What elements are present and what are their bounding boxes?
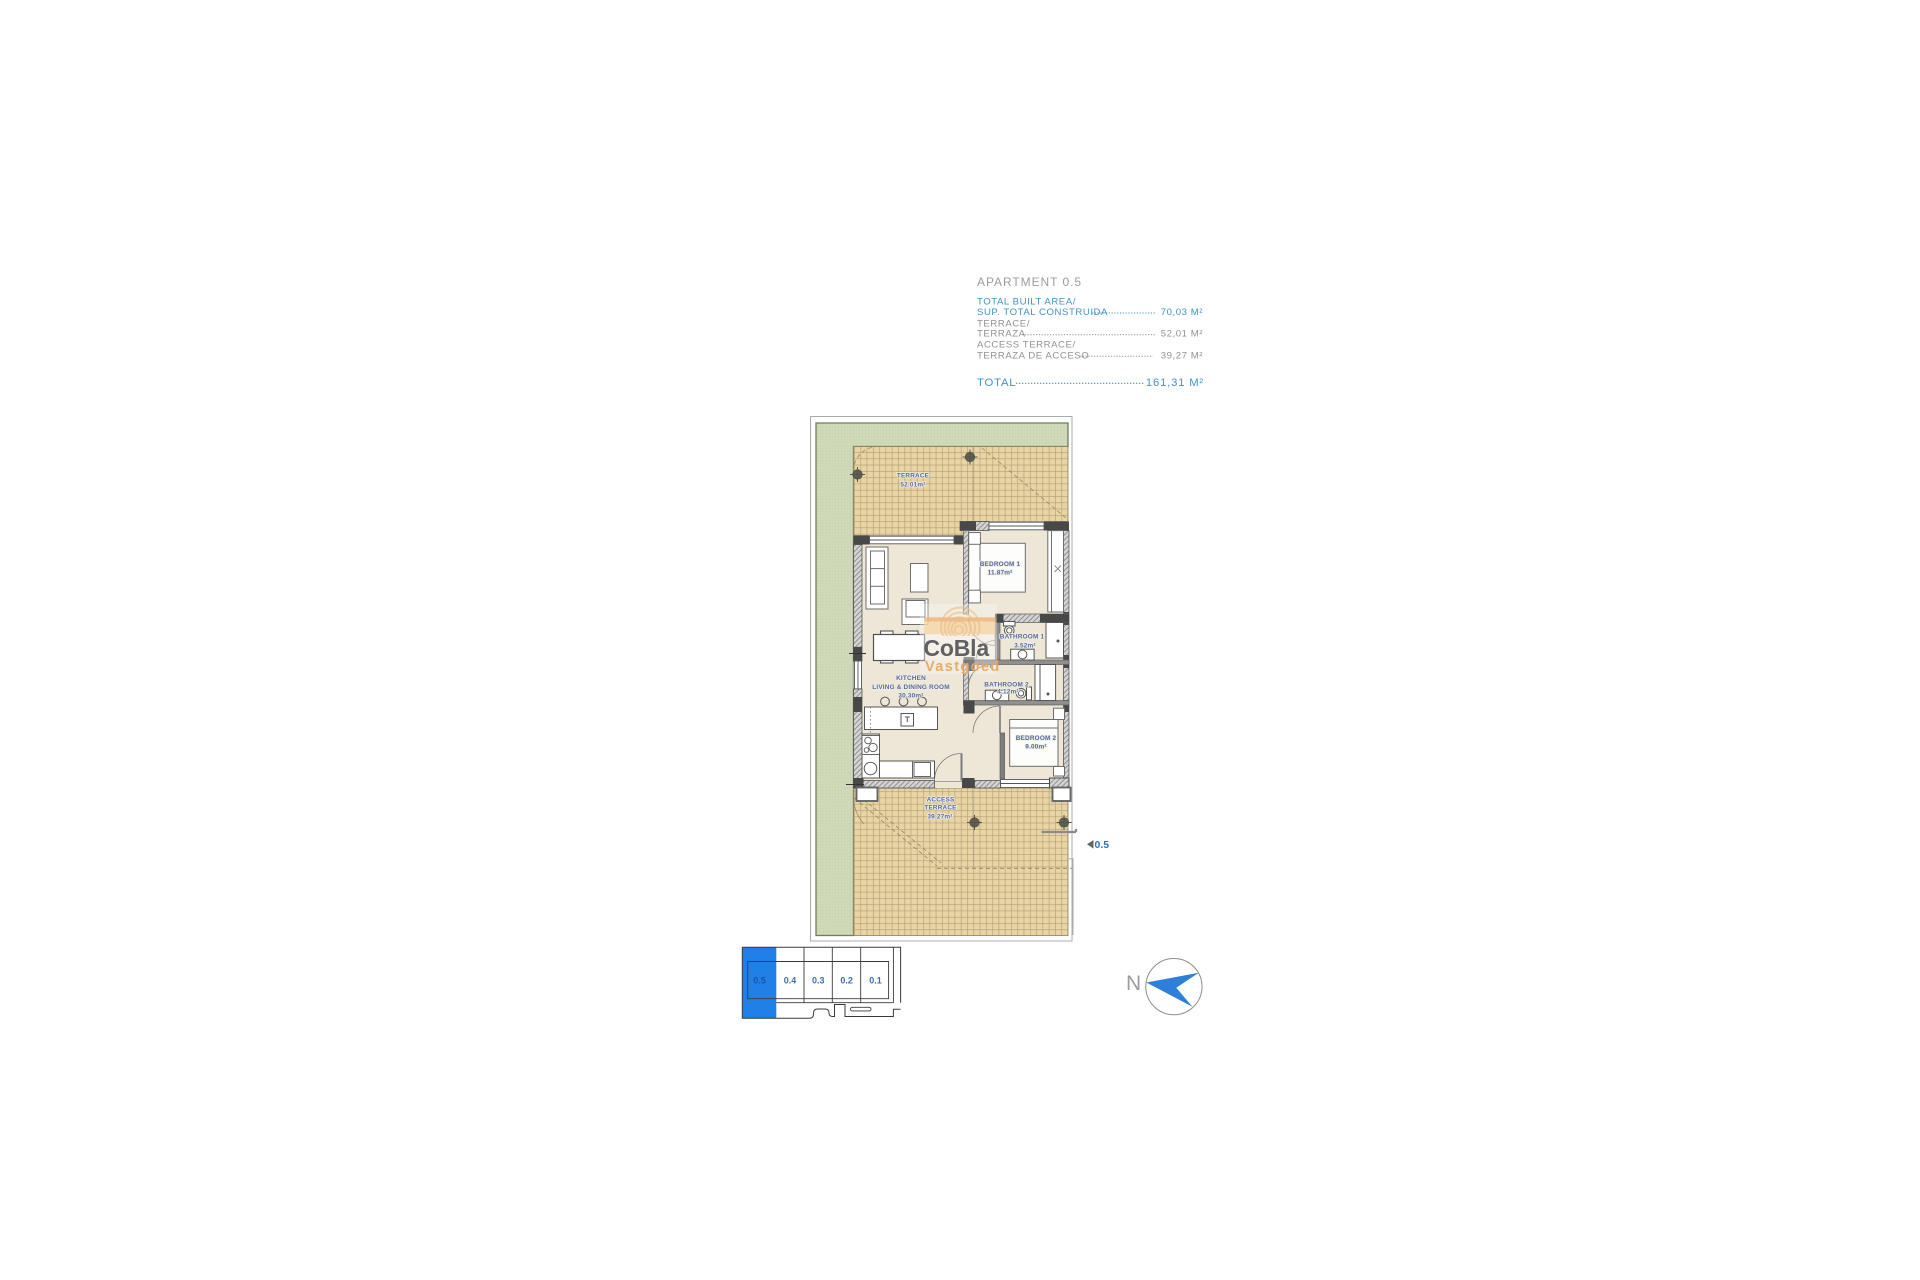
svg-text:39,27 M²: 39,27 M² <box>1161 350 1204 361</box>
svg-text:0.1: 0.1 <box>869 976 882 986</box>
svg-text:0.3: 0.3 <box>812 976 825 986</box>
svg-text:ACCESS TERRACE/: ACCESS TERRACE/ <box>977 340 1076 351</box>
svg-text:52.01m²: 52.01m² <box>900 482 925 489</box>
svg-text:9.00m²: 9.00m² <box>1025 744 1046 751</box>
svg-text:0.2: 0.2 <box>840 976 853 986</box>
svg-text:0.4: 0.4 <box>784 976 797 986</box>
svg-text:BATHROOM 2: BATHROOM 2 <box>984 682 1029 689</box>
svg-text:BATHROOM 1: BATHROOM 1 <box>1000 634 1045 641</box>
svg-text:SUP. TOTAL CONSTRUIDA: SUP. TOTAL CONSTRUIDA <box>977 307 1108 318</box>
svg-text:LIVING & DINING ROOM: LIVING & DINING ROOM <box>872 684 950 691</box>
svg-text:11.87m²: 11.87m² <box>988 570 1013 577</box>
svg-text:3.52m²: 3.52m² <box>1014 643 1035 650</box>
svg-text:CoBla: CoBla <box>924 635 990 661</box>
svg-text:BEDROOM 2: BEDROOM 2 <box>1016 735 1057 742</box>
svg-text:70,03 M²: 70,03 M² <box>1161 307 1204 318</box>
svg-text:0.5: 0.5 <box>1095 839 1110 851</box>
svg-text:N: N <box>1126 972 1141 995</box>
svg-text:TERRACE: TERRACE <box>924 805 957 812</box>
svg-text:TOTAL: TOTAL <box>977 377 1016 389</box>
svg-text:BEDROOM 1: BEDROOM 1 <box>980 561 1021 568</box>
svg-text:TERRAZA: TERRAZA <box>977 329 1026 340</box>
svg-text:TERRAZA DE ACCESO: TERRAZA DE ACCESO <box>977 350 1089 361</box>
svg-text:30.30m²: 30.30m² <box>898 693 923 700</box>
svg-text:52,01 M²: 52,01 M² <box>1161 329 1204 340</box>
svg-text:KITCHEN: KITCHEN <box>896 675 926 682</box>
svg-text:TERRACE: TERRACE <box>897 473 930 480</box>
svg-text:Vastgoed: Vastgoed <box>925 659 1001 675</box>
svg-text:APARTMENT 0.5: APARTMENT 0.5 <box>977 275 1082 289</box>
svg-text:ACCESS: ACCESS <box>927 797 955 804</box>
svg-text:0.5: 0.5 <box>753 976 766 986</box>
svg-text:4.12m²: 4.12m² <box>997 689 1018 696</box>
svg-text:39.27m²: 39.27m² <box>927 814 952 821</box>
svg-text:TOTAL BUILT AREA/: TOTAL BUILT AREA/ <box>977 297 1076 308</box>
svg-text:161,31 M²: 161,31 M² <box>1146 377 1204 389</box>
